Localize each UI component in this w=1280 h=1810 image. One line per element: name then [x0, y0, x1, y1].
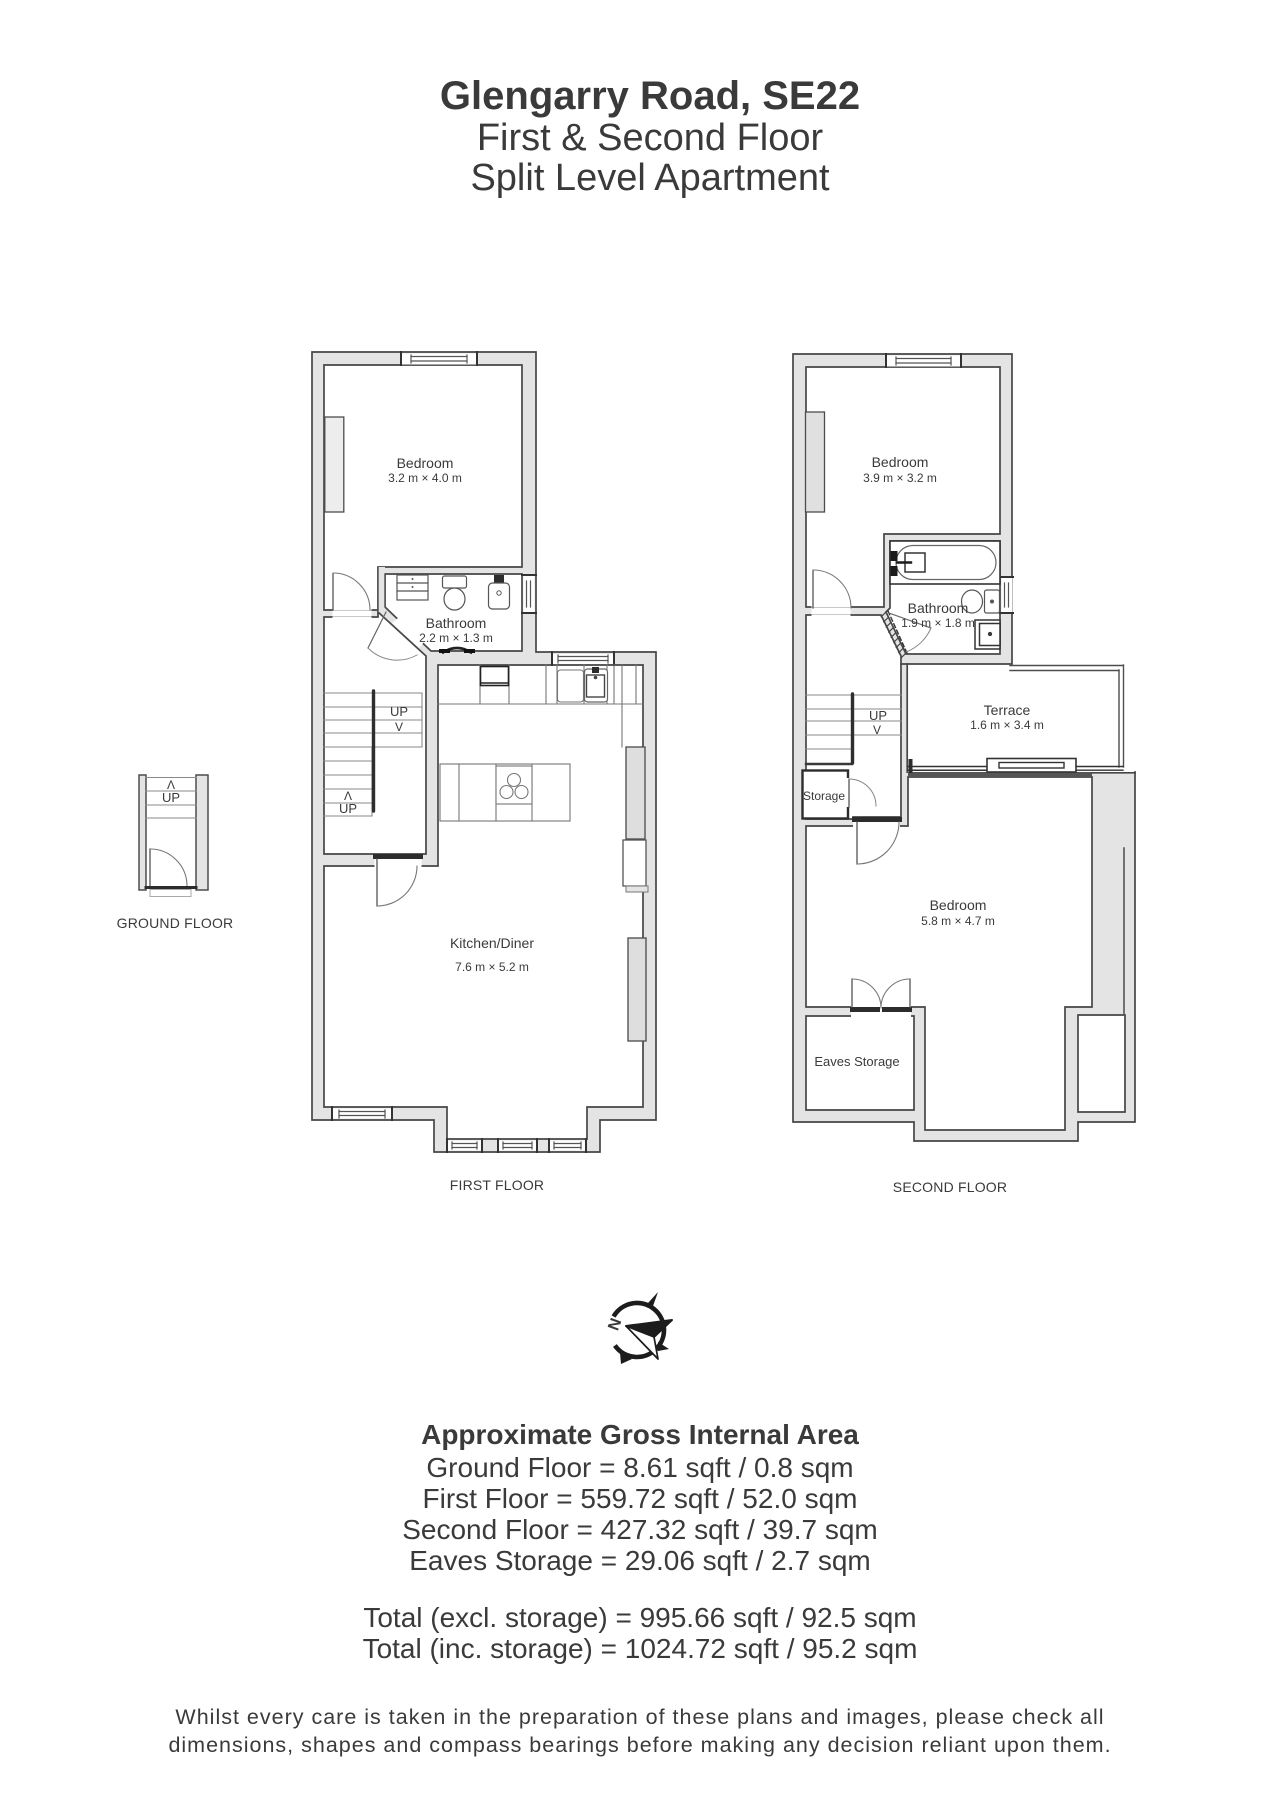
svg-text:Bathroom: Bathroom [908, 600, 969, 616]
svg-text:3.2 m × 4.0 m: 3.2 m × 4.0 m [388, 471, 462, 485]
svg-text:Whilst every care is taken in: Whilst every care is taken in the prepar… [175, 1705, 1104, 1729]
svg-text:V: V [873, 723, 881, 737]
svg-text:5.8 m × 4.7 m: 5.8 m × 4.7 m [921, 914, 995, 928]
svg-text:Kitchen/Diner: Kitchen/Diner [450, 935, 534, 951]
svg-text:Bedroom: Bedroom [872, 454, 929, 470]
svg-text:First Floor = 559.72 sqft / 52: First Floor = 559.72 sqft / 52.0 sqm [423, 1483, 858, 1514]
svg-text:dimensions, shapes and compass: dimensions, shapes and compass bearings … [168, 1733, 1111, 1757]
svg-text:GROUND FLOOR: GROUND FLOOR [117, 915, 234, 931]
svg-text:UP: UP [390, 704, 408, 719]
svg-text:Eaves Storage: Eaves Storage [814, 1054, 899, 1069]
svg-text:SECOND FLOOR: SECOND FLOOR [893, 1179, 1007, 1195]
svg-text:Glengarry Road, SE22: Glengarry Road, SE22 [440, 74, 860, 118]
svg-text:Approximate Gross Internal Are: Approximate Gross Internal Area [421, 1419, 859, 1450]
svg-text:First & Second Floor: First & Second Floor [477, 117, 824, 159]
svg-text:UP: UP [162, 790, 180, 805]
svg-text:Storage: Storage [803, 789, 845, 803]
svg-text:Bedroom: Bedroom [930, 897, 987, 913]
svg-text:Eaves Storage = 29.06 sqft /: Eaves Storage = 29.06 sqft / 2.7 sqm [409, 1545, 871, 1576]
svg-text:FIRST FLOOR: FIRST FLOOR [450, 1177, 545, 1193]
svg-text:1.6 m × 3.4 m: 1.6 m × 3.4 m [970, 718, 1044, 732]
svg-text:UP: UP [869, 708, 887, 723]
svg-text:2.2 m × 1.3 m: 2.2 m × 1.3 m [419, 631, 493, 645]
svg-text:Total (inc. storage) = 1024.72: Total (inc. storage) = 1024.72 sqft / 95… [363, 1633, 918, 1664]
svg-text:Second Floor = 427.32 sqft / 3: Second Floor = 427.32 sqft / 39.7 sqm [402, 1514, 878, 1545]
svg-text:Bathroom: Bathroom [426, 615, 487, 631]
svg-text:Terrace: Terrace [984, 702, 1031, 718]
svg-text:1.9 m × 1.8 m: 1.9 m × 1.8 m [901, 616, 975, 630]
svg-text:7.6 m × 5.2 m: 7.6 m × 5.2 m [455, 960, 529, 974]
svg-text:N: N [605, 1316, 625, 1333]
svg-text:UP: UP [339, 801, 357, 816]
svg-text:V: V [395, 720, 403, 734]
svg-text:Bedroom: Bedroom [397, 455, 454, 471]
svg-text:Split Level Apartment: Split Level Apartment [470, 157, 830, 199]
svg-text:3.9 m × 3.2 m: 3.9 m × 3.2 m [863, 471, 937, 485]
svg-text:Total (excl. storage) = 995.66: Total (excl. storage) = 995.66 sqft / 92… [363, 1602, 916, 1633]
svg-text:Ground Floor = 8.61 sqft / 0.8: Ground Floor = 8.61 sqft / 0.8 sqm [426, 1452, 853, 1483]
